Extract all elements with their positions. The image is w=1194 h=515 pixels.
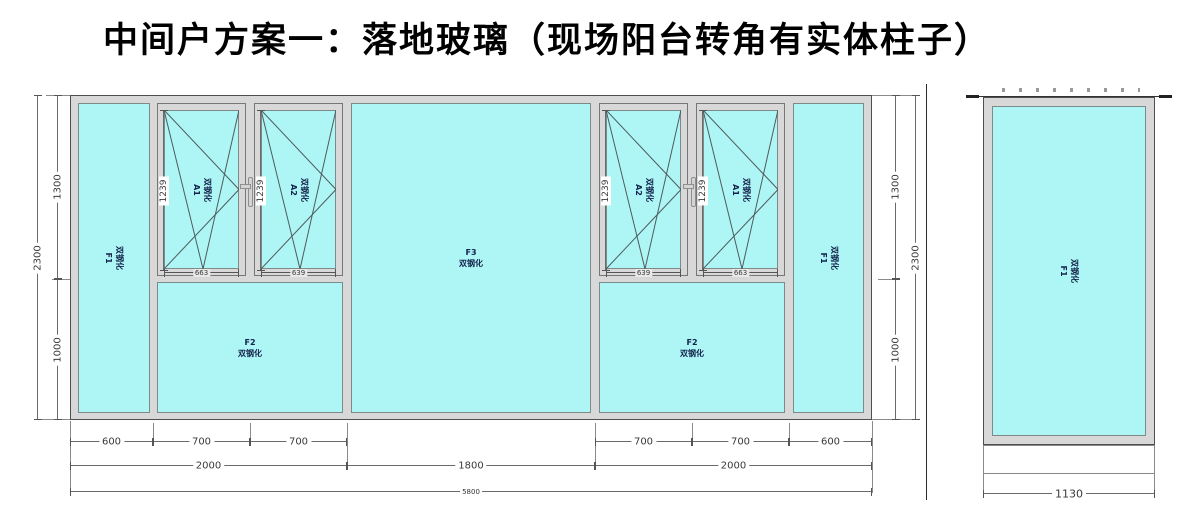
panel-label: 双钢化 F1 [817, 246, 839, 270]
dim-left-upper: 1300 [57, 95, 58, 279]
dim-bottom-700-left-2: 700 [250, 441, 347, 442]
panel-label: F2 双钢化 [238, 336, 262, 358]
dim-right-total: 2300 [915, 95, 916, 420]
dim-bottom-700-left-1: 700 [153, 441, 250, 442]
main-elevation-frame: 双钢化 F1 1239 663 双钢化 A1 [70, 95, 872, 420]
panel-label: F3 双钢化 [459, 247, 483, 269]
fixed-panel-f1-right: 双钢化 F1 [793, 103, 864, 413]
handle-bar [691, 177, 696, 207]
casement-a1-left: 1239 663 双钢化 A1 [157, 103, 246, 276]
fixed-panel-f1-side: 双钢化 F1 [992, 106, 1146, 436]
fixed-panel-f2-left: F2 双钢化 [157, 282, 343, 413]
panel-label: 双钢化 A1 [729, 178, 751, 202]
dim-side-width: 1130 [983, 493, 1155, 494]
dim-bottom-700-right-1: 700 [595, 441, 692, 442]
dim-bottom-700-right-2: 700 [692, 441, 789, 442]
dim-sash-glass-width: 639 [261, 272, 336, 273]
drawing-sheet: 中间户方案一：落地玻璃（现场阳台转角有实体柱子） 双钢化 F1 1239 663… [0, 0, 1194, 515]
dim-right-upper: 1300 [895, 95, 896, 279]
dim-sash-glass-width: 663 [703, 272, 778, 273]
extension-dash [966, 95, 979, 98]
fixed-panel-f3: F3 双钢化 [351, 103, 591, 413]
casement-a2-left: 1239 639 双钢化 A2 [254, 103, 343, 276]
window-handle-icon [240, 177, 256, 209]
casement-a1-right: 1239 663 双钢化 A1 [696, 103, 785, 276]
dim-sash-glass-width: 663 [164, 272, 239, 273]
dim-bottom-2000-left: 2000 [70, 465, 347, 466]
fixed-panel-f2-right: F2 双钢化 [599, 282, 785, 413]
panel-label: 双钢化 F1 [1058, 259, 1080, 283]
dim-bottom-600-left: 600 [70, 441, 153, 442]
section-divider-line [926, 84, 927, 500]
dim-sash-height: 1239 [702, 110, 703, 271]
dim-sash-height: 1239 [260, 110, 261, 271]
panel-label: 双钢化 A2 [287, 178, 309, 202]
dim-left-lower: 1000 [57, 279, 58, 420]
panel-label: F2 双钢化 [680, 336, 704, 358]
page-title: 中间户方案一：落地玻璃（现场阳台转角有实体柱子） [103, 12, 991, 63]
extension-line [70, 421, 71, 493]
panel-label: 双钢化 F1 [103, 246, 125, 270]
side-panel-sill [983, 445, 1155, 474]
dim-right-lower: 1000 [895, 279, 896, 420]
handle-grip [240, 184, 251, 189]
dim-bottom-600-right: 600 [789, 441, 872, 442]
fixed-panel-f1-left: 双钢化 F1 [78, 103, 150, 413]
panel-label: 双钢化 A2 [632, 178, 654, 202]
side-panel-frame: 双钢化 F1 [983, 97, 1155, 445]
top-tick-marks [1002, 88, 1140, 92]
extension-line [872, 421, 873, 493]
dim-left-total: 2300 [37, 95, 38, 420]
dim-sash-height: 1239 [605, 110, 606, 271]
panel-label: 双钢化 A1 [190, 178, 212, 202]
dim-sash-height: 1239 [163, 110, 164, 271]
dim-bottom-total: 5800 [70, 491, 872, 492]
dim-sash-glass-width: 639 [606, 272, 681, 273]
dim-bottom-1800-center: 1800 [347, 465, 595, 466]
handle-grip [683, 184, 694, 189]
handle-bar [248, 177, 253, 207]
extension-dash [1159, 95, 1172, 98]
casement-a2-right: 1239 639 双钢化 A2 [599, 103, 688, 276]
window-handle-icon [683, 177, 699, 209]
dim-bottom-2000-right: 2000 [595, 465, 872, 466]
